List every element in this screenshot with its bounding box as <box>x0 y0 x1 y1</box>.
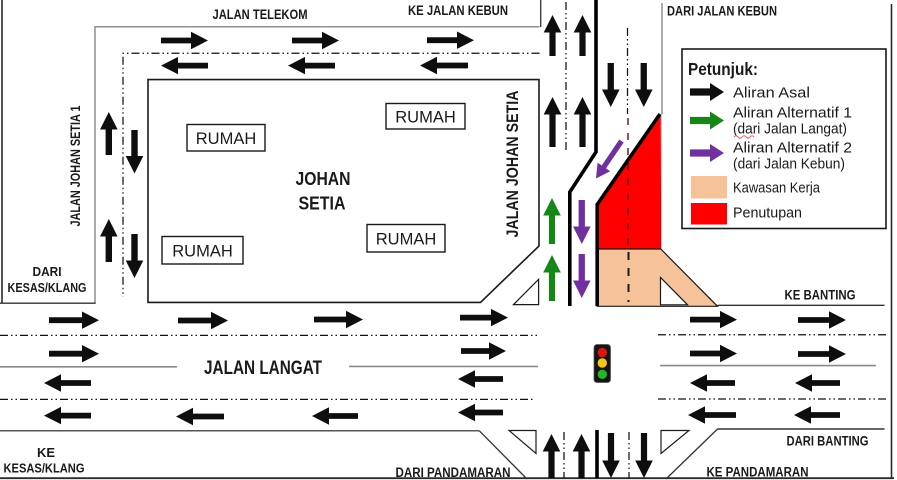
svg-text:KESAS/KLANG: KESAS/KLANG <box>4 461 85 476</box>
svg-text:(dari Jalan Langat): (dari Jalan Langat) <box>733 122 847 138</box>
svg-text:DARI: DARI <box>33 265 62 279</box>
svg-text:DARI BANTING: DARI BANTING <box>787 434 869 449</box>
svg-text:JALAN LANGAT: JALAN LANGAT <box>204 358 322 379</box>
svg-text:RUMAH: RUMAH <box>376 231 437 249</box>
svg-text:KE: KE <box>37 445 55 460</box>
svg-text:DARI PANDAMARAN: DARI PANDAMARAN <box>396 465 511 480</box>
svg-text:SETIA: SETIA <box>299 193 346 214</box>
svg-text:Penutupan: Penutupan <box>733 206 802 222</box>
svg-text:KESAS/KLANG: KESAS/KLANG <box>8 281 87 295</box>
svg-text:DARI JALAN KEBUN: DARI JALAN KEBUN <box>667 4 777 19</box>
svg-text:JALAN JOHAN SETIA 1: JALAN JOHAN SETIA 1 <box>67 105 83 226</box>
svg-text:KE BANTING: KE BANTING <box>785 288 856 303</box>
svg-text:Aliran Alternatif 1: Aliran Alternatif 1 <box>733 106 852 122</box>
svg-text:JALAN JOHAN SETIA: JALAN JOHAN SETIA <box>504 90 522 237</box>
svg-text:RUMAH: RUMAH <box>196 130 257 148</box>
svg-text:RUMAH: RUMAH <box>395 109 456 127</box>
svg-text:(dari Jalan Kebun): (dari Jalan Kebun) <box>733 157 845 173</box>
svg-text:JALAN TELEKOM: JALAN TELEKOM <box>213 7 308 22</box>
svg-text:Petunjuk:: Petunjuk: <box>688 59 758 79</box>
svg-text:Kawasan Kerja: Kawasan Kerja <box>733 181 821 197</box>
svg-text:JOHAN: JOHAN <box>296 168 351 189</box>
svg-text:KE PANDAMARAN: KE PANDAMARAN <box>707 465 809 480</box>
svg-text:Aliran Asal: Aliran Asal <box>733 86 810 102</box>
svg-text:RUMAH: RUMAH <box>172 243 233 261</box>
svg-text:Aliran Alternatif 2: Aliran Alternatif 2 <box>733 141 852 157</box>
svg-text:KE JALAN KEBUN: KE JALAN KEBUN <box>408 3 508 18</box>
